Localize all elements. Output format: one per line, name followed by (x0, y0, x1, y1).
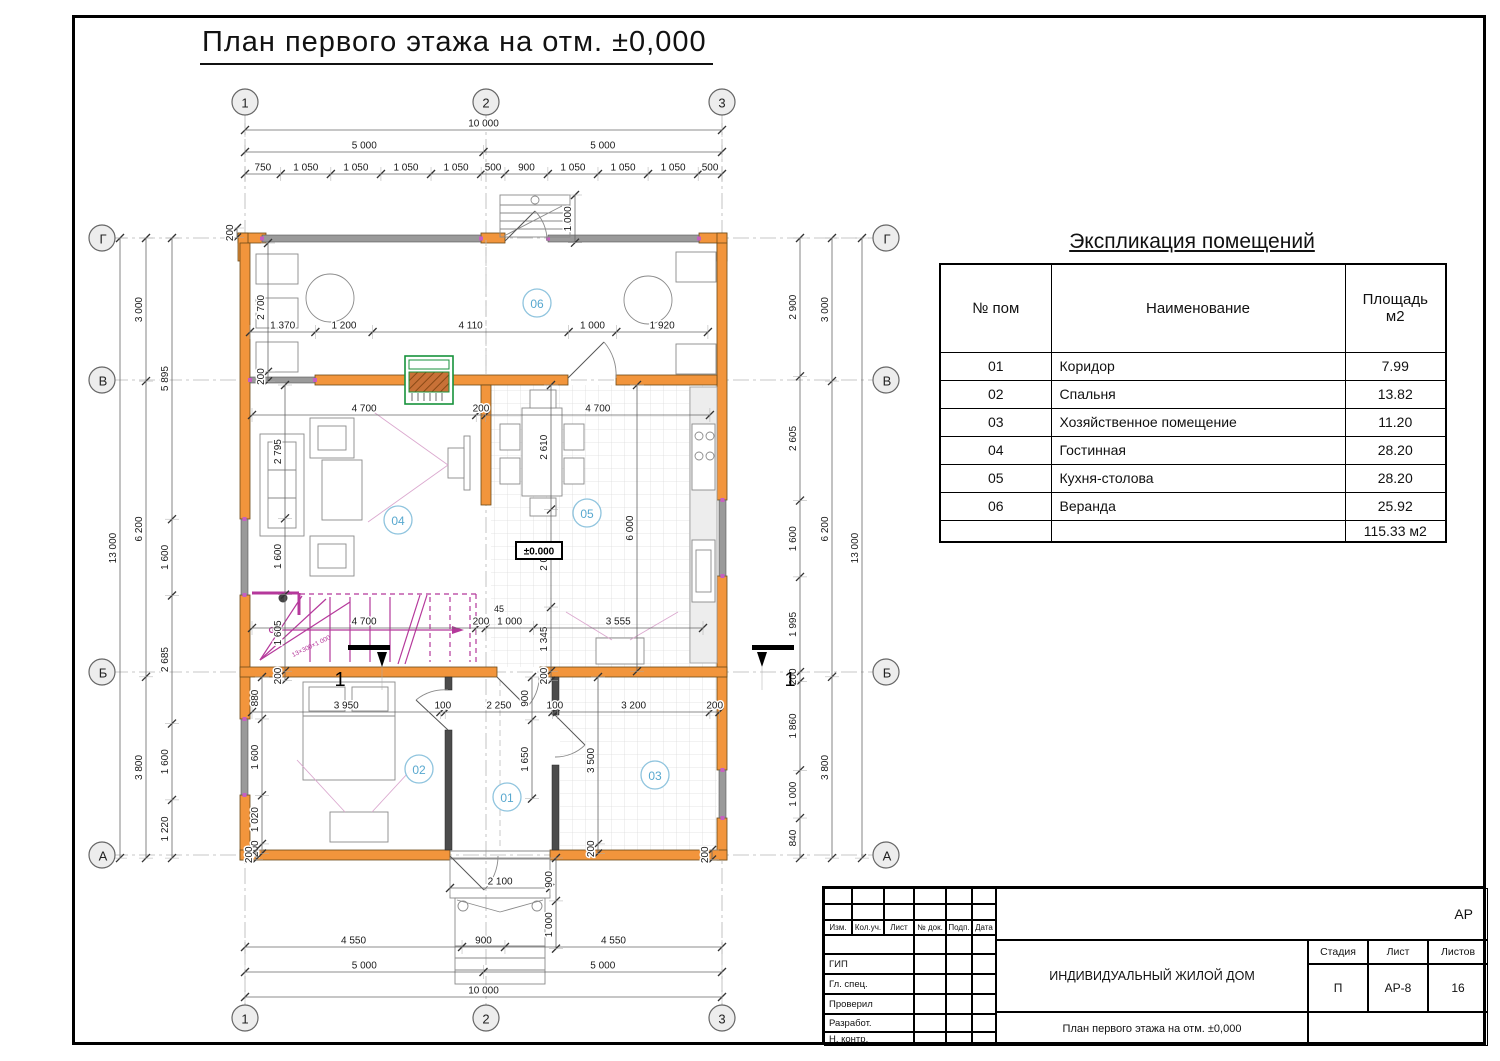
signature-cell (946, 1014, 972, 1032)
svg-text:А: А (99, 849, 108, 864)
svg-text:1: 1 (334, 669, 345, 691)
title-block-empty-cell (1308, 1012, 1488, 1046)
svg-text:3 555: 3 555 (606, 617, 631, 628)
revision-cell (946, 888, 972, 904)
date-cell (972, 1014, 996, 1032)
svg-text:840: 840 (788, 829, 799, 846)
room-number: 04 (940, 436, 1051, 464)
svg-text:5 000: 5 000 (352, 141, 377, 152)
svg-text:3 000: 3 000 (820, 297, 831, 322)
svg-text:1 600: 1 600 (273, 544, 284, 569)
svg-text:1 920: 1 920 (650, 321, 675, 332)
revision-cell (852, 904, 884, 920)
room-number: 02 (940, 380, 1051, 408)
svg-text:2: 2 (482, 1012, 489, 1027)
revision-cell (852, 888, 884, 904)
title-block-stage-label: Стадия (1308, 940, 1368, 964)
svg-text:6 000: 6 000 (625, 515, 636, 540)
signature-cell (946, 974, 972, 994)
room-name: Кухня-столова (1051, 464, 1345, 492)
room-schedule: Экспликация помещений № пом Наименование… (939, 230, 1445, 543)
title-block-sheets-value: 16 (1428, 964, 1488, 1012)
revision-header: Подп. (946, 920, 972, 935)
title-block-stage-value: П (1308, 964, 1368, 1012)
svg-text:1 050: 1 050 (293, 163, 318, 174)
role-cell: Проверил (824, 994, 914, 1014)
role-cell: Разработ. (824, 1014, 914, 1032)
svg-text:10 000: 10 000 (468, 119, 499, 130)
svg-text:1 000: 1 000 (563, 206, 574, 231)
svg-text:900: 900 (518, 163, 535, 174)
svg-text:4 550: 4 550 (601, 936, 626, 947)
role-cell: Н. контр. (824, 1032, 914, 1046)
svg-text:1 200: 1 200 (331, 321, 356, 332)
svg-text:1 050: 1 050 (393, 163, 418, 174)
svg-text:200: 200 (539, 667, 550, 684)
svg-text:3: 3 (718, 1012, 725, 1027)
signature-cell (914, 1014, 946, 1032)
title-block: Изм.Кол.уч.Лист№ док.Подп.ДатаГИПГл. спе… (822, 886, 1486, 1044)
svg-text:200: 200 (244, 846, 255, 863)
kitchen-counter (690, 387, 717, 663)
revision-cell (946, 904, 972, 920)
title-block-sheet-title: План первого этажа на отм. ±0,000 (996, 1012, 1308, 1046)
svg-text:1 050: 1 050 (343, 163, 368, 174)
svg-text:6 200: 6 200 (134, 516, 145, 541)
room-name: Спальня (1051, 380, 1345, 408)
room-area: 7.99 (1345, 352, 1446, 380)
svg-text:Г: Г (883, 232, 890, 247)
revision-header: Лист (884, 920, 914, 935)
signature-cell (914, 935, 946, 954)
signature-cell (946, 1032, 972, 1046)
room-number: 03 (940, 408, 1051, 436)
svg-text:3: 3 (718, 96, 725, 111)
svg-text:1 345: 1 345 (539, 626, 550, 651)
svg-text:900: 900 (544, 871, 555, 888)
svg-text:2 610: 2 610 (539, 434, 550, 459)
svg-text:13 000: 13 000 (850, 532, 861, 563)
svg-text:02: 02 (412, 763, 426, 777)
revision-cell (972, 888, 996, 904)
fireplace (405, 356, 453, 404)
title-block-sheets-label: Листов (1428, 940, 1488, 964)
signature-cell (914, 954, 946, 974)
svg-text:1 600: 1 600 (160, 749, 171, 774)
drawing-sheet: План первого этажа на отм. ±0,000 13×300… (0, 0, 1500, 1061)
role-cell: Гл. спец. (824, 974, 914, 994)
room-name: Веранда (1051, 492, 1345, 520)
svg-text:200: 200 (706, 701, 723, 712)
revision-cell (914, 904, 946, 920)
signature-cell (946, 935, 972, 954)
svg-text:3 200: 3 200 (621, 701, 646, 712)
schedule-table: № пом Наименование Площадь м2 01Коридор7… (939, 263, 1447, 543)
svg-text:05: 05 (580, 507, 594, 521)
svg-text:1 000: 1 000 (788, 781, 799, 806)
svg-text:5 000: 5 000 (590, 141, 615, 152)
date-cell (972, 974, 996, 994)
dimensions: 10 0005 0005 0007501 0501 0501 0501 0505… (108, 119, 869, 1005)
svg-text:04: 04 (391, 514, 405, 528)
title-block-code: АР (996, 888, 1488, 940)
svg-text:200: 200 (225, 224, 236, 241)
svg-text:1: 1 (241, 96, 248, 111)
svg-text:03: 03 (648, 769, 662, 783)
schedule-col-number: № пом (940, 264, 1051, 352)
schedule-title: Экспликация помещений (939, 230, 1445, 254)
svg-text:45: 45 (494, 604, 504, 614)
revision-cell (914, 888, 946, 904)
svg-text:2 605: 2 605 (788, 426, 799, 451)
svg-text:4 700: 4 700 (585, 404, 610, 415)
svg-text:200: 200 (700, 846, 711, 863)
svg-text:2 685: 2 685 (160, 647, 171, 672)
revision-cell (824, 904, 852, 920)
room-name: Коридор (1051, 352, 1345, 380)
schedule-row: 05Кухня-столова28.20 (940, 464, 1446, 492)
svg-text:Г: Г (99, 232, 106, 247)
title-block-sheet-label: Лист (1368, 940, 1428, 964)
svg-text:1 650: 1 650 (520, 746, 531, 771)
svg-text:5 895: 5 895 (160, 366, 171, 391)
date-cell (972, 994, 996, 1014)
svg-text:10 000: 10 000 (468, 986, 499, 997)
schedule-row: 04Гостинная28.20 (940, 436, 1446, 464)
room-number: 05 (940, 464, 1051, 492)
svg-text:100: 100 (434, 701, 451, 712)
svg-text:750: 750 (255, 163, 272, 174)
staircase: 13×300×1 000 (252, 593, 476, 664)
revision-cell (972, 904, 996, 920)
svg-text:±0.000: ±0.000 (524, 547, 555, 558)
room-area: 25.92 (1345, 492, 1446, 520)
svg-text:4 550: 4 550 (341, 936, 366, 947)
schedule-row: 01Коридор7.99 (940, 352, 1446, 380)
schedule-row: 02Спальня13.82 (940, 380, 1446, 408)
schedule-total-area: 115.33 м2 (1345, 520, 1446, 542)
schedule-row: 06Веранда25.92 (940, 492, 1446, 520)
svg-text:500: 500 (485, 163, 502, 174)
revision-cell (824, 888, 852, 904)
svg-text:1 000: 1 000 (544, 912, 555, 937)
svg-text:4 700: 4 700 (352, 617, 377, 628)
svg-text:3 000: 3 000 (134, 297, 145, 322)
elevation-marker: ±0.000 (516, 542, 562, 559)
svg-text:200: 200 (473, 617, 490, 628)
svg-text:Б: Б (883, 666, 892, 681)
svg-text:06: 06 (530, 297, 544, 311)
room-name: Хозяйственное помещение (1051, 408, 1345, 436)
schedule-total-empty2 (1051, 520, 1345, 542)
room-area: 28.20 (1345, 464, 1446, 492)
date-cell (972, 954, 996, 974)
svg-text:5 000: 5 000 (352, 961, 377, 972)
svg-text:1: 1 (241, 1012, 248, 1027)
signature-cell (946, 994, 972, 1014)
svg-text:900: 900 (520, 690, 531, 707)
svg-text:5 000: 5 000 (590, 961, 615, 972)
room-area: 13.82 (1345, 380, 1446, 408)
svg-text:1 605: 1 605 (273, 620, 284, 645)
role-cell: ГИП (824, 954, 914, 974)
revision-header: Изм. (824, 920, 852, 935)
svg-text:А: А (883, 849, 892, 864)
svg-text:Б: Б (99, 666, 108, 681)
svg-text:2 900: 2 900 (788, 294, 799, 319)
schedule-col-name: Наименование (1051, 264, 1345, 352)
svg-text:500: 500 (702, 163, 719, 174)
svg-text:880: 880 (250, 689, 261, 706)
svg-text:1 600: 1 600 (788, 526, 799, 551)
svg-text:4 110: 4 110 (458, 321, 483, 332)
svg-text:2 250: 2 250 (486, 701, 511, 712)
svg-text:В: В (883, 374, 892, 389)
signature-cell (914, 974, 946, 994)
svg-text:200: 200 (273, 667, 284, 684)
schedule-col-area: Площадь м2 (1345, 264, 1446, 352)
svg-text:13×300×1 000: 13×300×1 000 (291, 634, 332, 659)
revision-header: Кол.уч. (852, 920, 884, 935)
date-cell (972, 1032, 996, 1046)
svg-text:200: 200 (586, 840, 597, 857)
signature-cell (914, 994, 946, 1014)
revision-cell (884, 888, 914, 904)
title-block-project: ИНДИВИДУАЛЬНЫЙ ЖИЛОЙ ДОМ (996, 940, 1308, 1012)
revision-header: Дата (972, 920, 996, 935)
svg-text:200: 200 (473, 404, 490, 415)
svg-text:13 000: 13 000 (108, 532, 119, 563)
svg-text:3 500: 3 500 (586, 748, 597, 773)
svg-text:1: 1 (784, 669, 795, 691)
svg-text:1 370: 1 370 (270, 321, 295, 332)
svg-text:1 860: 1 860 (788, 713, 799, 738)
svg-text:2: 2 (482, 96, 489, 111)
room-number: 06 (940, 492, 1051, 520)
svg-text:3 800: 3 800 (134, 755, 145, 780)
svg-text:200: 200 (256, 368, 267, 385)
room-name: Гостинная (1051, 436, 1345, 464)
svg-text:900: 900 (475, 936, 492, 947)
svg-text:1 050: 1 050 (661, 163, 686, 174)
svg-text:1 050: 1 050 (611, 163, 636, 174)
schedule-row: 03Хозяйственное помещение11.20 (940, 408, 1446, 436)
svg-text:2 100: 2 100 (488, 877, 513, 888)
schedule-total-empty1 (940, 520, 1051, 542)
svg-text:1 050: 1 050 (444, 163, 469, 174)
svg-text:1 050: 1 050 (560, 163, 585, 174)
svg-text:6 200: 6 200 (820, 516, 831, 541)
revision-cell (884, 904, 914, 920)
room-area: 28.20 (1345, 436, 1446, 464)
date-cell (972, 935, 996, 954)
revision-header: № док. (914, 920, 946, 935)
svg-text:1 600: 1 600 (160, 544, 171, 569)
svg-text:2 795: 2 795 (273, 439, 284, 464)
signature-cell (946, 954, 972, 974)
svg-text:1 220: 1 220 (160, 816, 171, 841)
title-block-sheet-value: АР-8 (1368, 964, 1428, 1012)
svg-text:100: 100 (547, 701, 564, 712)
svg-text:4 700: 4 700 (352, 404, 377, 415)
svg-text:1 000: 1 000 (497, 617, 522, 628)
room-area: 11.20 (1345, 408, 1446, 436)
svg-text:1 995: 1 995 (788, 612, 799, 637)
svg-text:1 600: 1 600 (250, 744, 261, 769)
svg-text:3 950: 3 950 (334, 701, 359, 712)
svg-text:В: В (99, 374, 108, 389)
svg-text:1 000: 1 000 (580, 321, 605, 332)
svg-text:1 020: 1 020 (250, 807, 261, 832)
svg-text:2 700: 2 700 (256, 294, 267, 319)
svg-text:01: 01 (500, 791, 514, 805)
role-cell (824, 935, 914, 954)
signature-cell (914, 1032, 946, 1046)
room-number: 01 (940, 352, 1051, 380)
svg-text:3 800: 3 800 (820, 755, 831, 780)
